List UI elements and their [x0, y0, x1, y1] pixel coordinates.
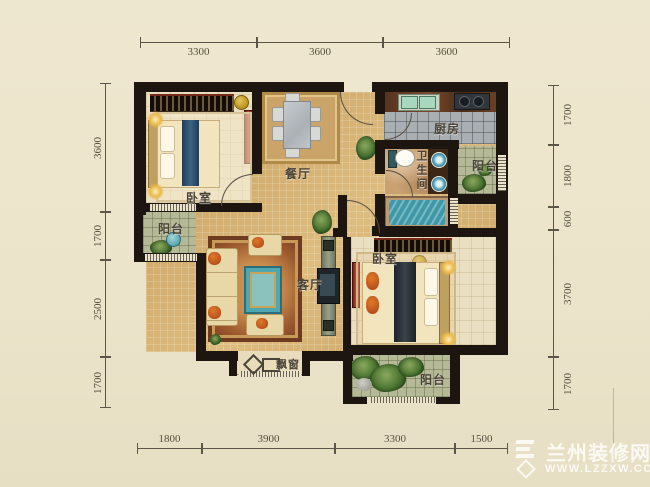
- wall: [134, 82, 344, 92]
- bathtub-water: [389, 200, 445, 225]
- window: [450, 198, 458, 224]
- label-kitchen: 厨房: [434, 120, 460, 137]
- orange-pillow: [366, 272, 379, 290]
- watermark-logo-icon: [516, 440, 535, 444]
- wall: [338, 195, 347, 237]
- label-balcony-right: 阳台: [472, 157, 498, 174]
- label-bedroom-right: 卧室: [372, 250, 398, 267]
- wall: [134, 82, 146, 215]
- wall: [343, 237, 351, 351]
- wash-basin: [431, 176, 447, 192]
- label-living: 客厅: [297, 276, 323, 293]
- stove-burner: [459, 96, 470, 107]
- dim-right-3: 600: [553, 207, 570, 230]
- balcony-plant: [462, 174, 486, 192]
- toilet-bowl: [395, 149, 415, 167]
- dim-right-5: 1700: [553, 357, 570, 410]
- dim-bottom-3: 3300: [335, 432, 455, 449]
- dim-top-1: 3300: [140, 42, 257, 59]
- dim-left-2: 1700: [105, 212, 122, 260]
- dining-table: [283, 101, 311, 149]
- window: [145, 254, 197, 261]
- dim-right-2: 1800: [553, 145, 570, 207]
- potted-plant: [356, 136, 376, 160]
- label-balcony-bottom: 阳台: [420, 371, 446, 388]
- label-dining: 餐厅: [285, 165, 311, 182]
- bed-right-runner: [394, 262, 416, 342]
- orange-pillow: [252, 237, 264, 248]
- window: [498, 155, 506, 191]
- dim-top-3: 3600: [383, 42, 510, 59]
- wall: [375, 92, 385, 114]
- balcony-stone: [356, 378, 372, 391]
- window: [369, 397, 435, 403]
- watermark: 兰州装修网 WWW.LZZXW.COM: [516, 440, 648, 484]
- bed-right-pillow: [424, 298, 438, 326]
- dim-top-2: 3600: [257, 42, 383, 59]
- orange-pillow: [208, 252, 221, 265]
- wall: [252, 92, 262, 174]
- wash-basin: [431, 152, 447, 168]
- speaker: [323, 240, 334, 251]
- dim-left-3: 2500: [105, 260, 122, 357]
- watermark-logo-icon: [516, 459, 536, 479]
- wall: [302, 351, 310, 376]
- nightstand-lamp: [147, 111, 164, 128]
- watermark-site-url: WWW.LZZXW.COM: [545, 463, 650, 475]
- bed-left-pillow: [160, 126, 175, 152]
- coffee-table: [250, 272, 276, 308]
- bed-right-pillow: [424, 268, 438, 296]
- label-bathroom: 卫生间: [413, 150, 429, 196]
- floor-plan: 卧室 餐厅 厨房 卫生间 阳台 阳台 卧室 客厅 飘窗 阳台 3300 3600…: [0, 0, 650, 487]
- wall: [229, 351, 237, 376]
- wall: [496, 82, 508, 355]
- nightstand-lamp: [147, 183, 164, 200]
- label-bay-window: 飘窗: [276, 356, 300, 372]
- orange-pillow: [208, 306, 221, 319]
- dim-bottom-4: 1500: [455, 432, 508, 449]
- label-bedroom-left: 卧室: [186, 189, 212, 206]
- dim-right-4: 3700: [553, 230, 570, 357]
- wall: [379, 228, 507, 237]
- kitchen-sink-basin: [419, 96, 436, 109]
- bed-left-runner: [182, 120, 199, 186]
- watermark-logo-icon: [516, 447, 531, 451]
- bed-left-pillow: [160, 153, 175, 179]
- wall: [343, 397, 367, 404]
- label-balcony-left: 阳台: [158, 220, 184, 237]
- potted-plant: [312, 210, 332, 234]
- orange-pillow: [256, 318, 268, 329]
- potted-plant: [210, 334, 221, 345]
- wall: [372, 82, 508, 92]
- dim-bottom-2: 3900: [202, 432, 335, 449]
- dim-bottom-1: 1800: [137, 432, 202, 449]
- watermark-site-name: 兰州装修网: [546, 437, 650, 466]
- dim-left-4: 1700: [105, 357, 122, 408]
- watermark-logo-icon: [516, 454, 535, 458]
- ceiling-lamp-bedroom-left: [234, 95, 249, 110]
- wall: [343, 345, 507, 355]
- dim-left-1: 3600: [105, 83, 122, 212]
- wall: [196, 253, 206, 361]
- nightstand-lamp: [440, 259, 457, 276]
- wall: [436, 397, 460, 404]
- wardrobe-bedroom-left: [150, 94, 234, 112]
- dim-right-1: 1700: [553, 85, 570, 145]
- stove-burner: [473, 96, 484, 107]
- orange-pillow: [366, 296, 379, 314]
- speaker: [323, 320, 334, 331]
- kitchen-sink-basin: [401, 96, 418, 109]
